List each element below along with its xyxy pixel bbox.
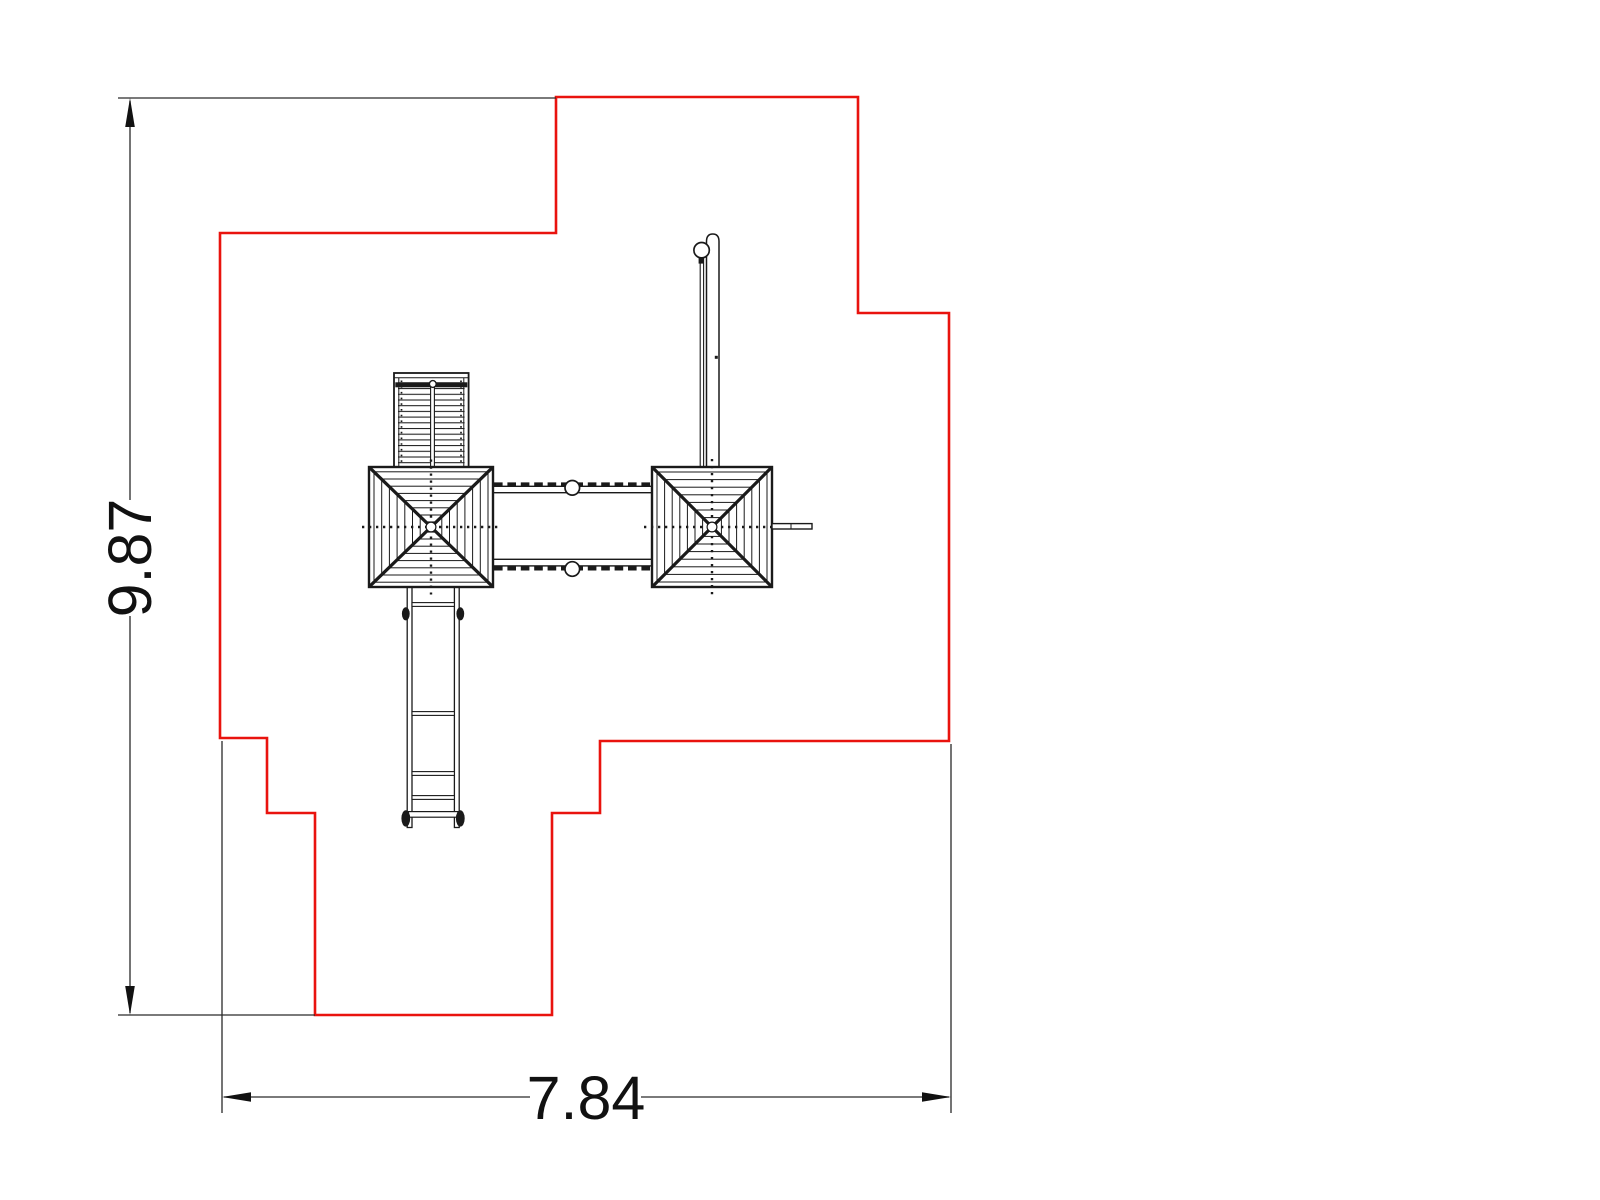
arrow-up-icon: [125, 98, 135, 127]
pole-dot: [715, 356, 718, 359]
slide-cap: [456, 810, 465, 826]
roof-finial-icon: [707, 522, 717, 532]
swing-pole: [694, 234, 719, 468]
slide-rung: [412, 603, 454, 607]
left-tower-roof: [362, 460, 500, 595]
slide-end-bar: [409, 812, 459, 818]
slide-cap: [456, 607, 464, 620]
slide-rail-left: [407, 587, 412, 828]
roof-finial-icon: [426, 522, 436, 532]
slide-cap: [402, 607, 410, 620]
ramp-knob-icon: [429, 381, 436, 388]
slide-ladder: [401, 587, 464, 828]
cad-drawing-page: 9.87 7.84: [0, 0, 1600, 1200]
bridge: [493, 481, 652, 577]
pole-ring-icon: [694, 243, 709, 258]
side-bar: [772, 524, 812, 529]
arrow-right-icon: [922, 1092, 951, 1102]
climbing-ramp: [394, 373, 469, 467]
pole-loop: [707, 234, 720, 468]
slide-rung: [412, 796, 454, 800]
safety-zone-boundary: [220, 97, 949, 1015]
pole-shaft: [700, 257, 703, 468]
slide-rail-right: [454, 587, 459, 828]
bridge-post-bottom: [565, 562, 580, 577]
slide-rung: [412, 772, 454, 776]
dimension-label-width: 7.84: [527, 1064, 646, 1132]
ramp-center-beam: [431, 386, 435, 467]
slide-cap: [401, 810, 410, 826]
dimension-horizontal: [222, 741, 951, 1113]
bridge-post-top: [565, 481, 580, 496]
arrow-down-icon: [125, 986, 135, 1015]
cad-canvas: 9.87 7.84: [0, 0, 1600, 1200]
arrow-left-icon: [222, 1092, 251, 1102]
dimension-label-height: 9.87: [96, 499, 164, 618]
slide-rung: [412, 712, 454, 716]
right-tower-roof: [644, 459, 786, 595]
